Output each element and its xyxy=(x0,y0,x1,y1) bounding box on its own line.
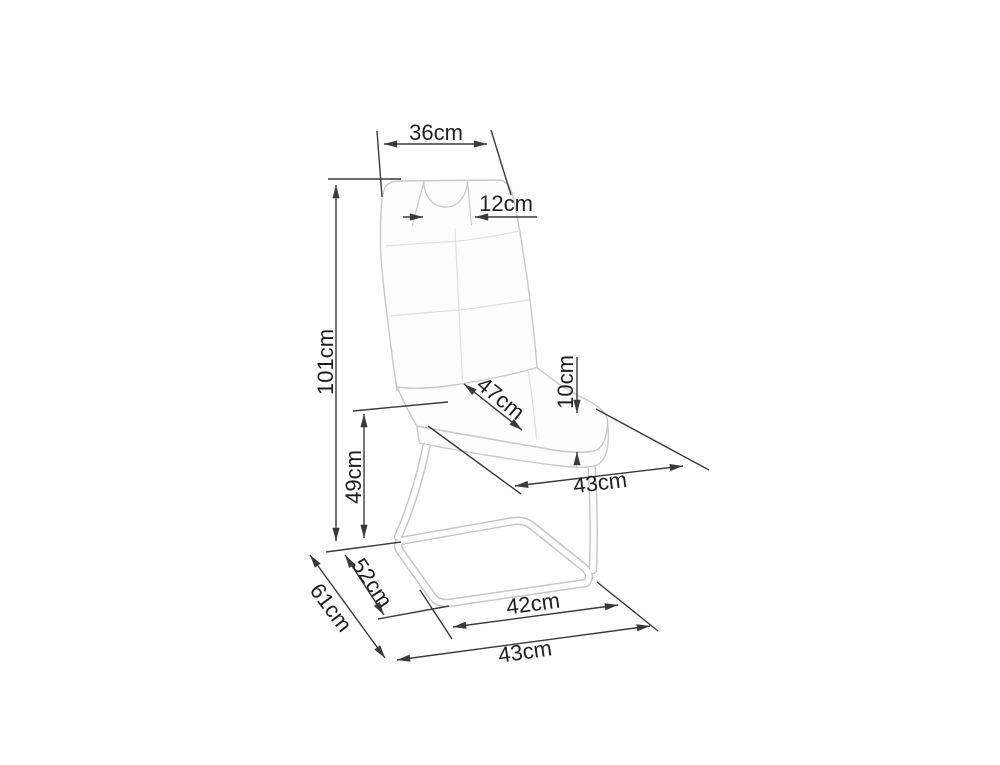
chair-dimension-diagram: 36cm 12cm 101cm 49cm 47cm 10cm 43cm 52cm… xyxy=(0,0,1000,765)
diagram-canvas: 36cm 12cm 101cm 49cm 47cm 10cm 43cm 52cm… xyxy=(0,0,1000,765)
dimension-label-top-width: 36cm xyxy=(409,120,463,145)
ext-seat-width-right xyxy=(596,409,709,470)
dimension-label-seat-width: 43cm xyxy=(572,467,628,498)
dimension-label-total-depth: 61cm xyxy=(305,578,357,636)
ext-top-width-left xyxy=(377,131,382,197)
dimension-label-total-height: 101cm xyxy=(313,329,338,395)
dimension-label-cushion-thickness: 10cm xyxy=(553,355,578,409)
dimension-label-base-width: 43cm xyxy=(497,635,554,667)
dimension-label-handle-width: 12cm xyxy=(479,191,533,216)
dimension-label-base-side-depth: 52cm xyxy=(347,554,398,613)
ext-floor-level xyxy=(326,542,401,552)
dimension-label-seat-height: 49cm xyxy=(341,450,366,504)
